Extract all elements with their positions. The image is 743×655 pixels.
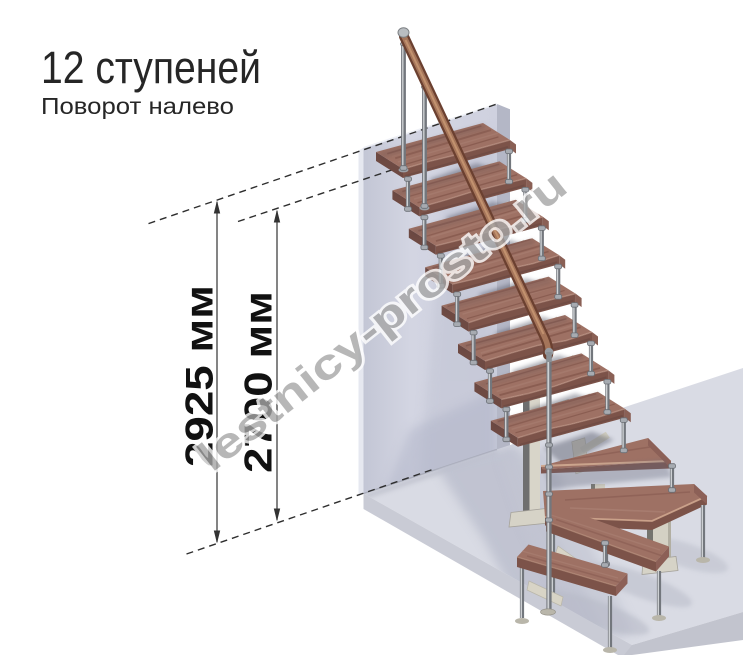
svg-text:12 ступеней: 12 ступеней [41, 42, 261, 93]
svg-text:Поворот налево: Поворот налево [41, 93, 234, 119]
